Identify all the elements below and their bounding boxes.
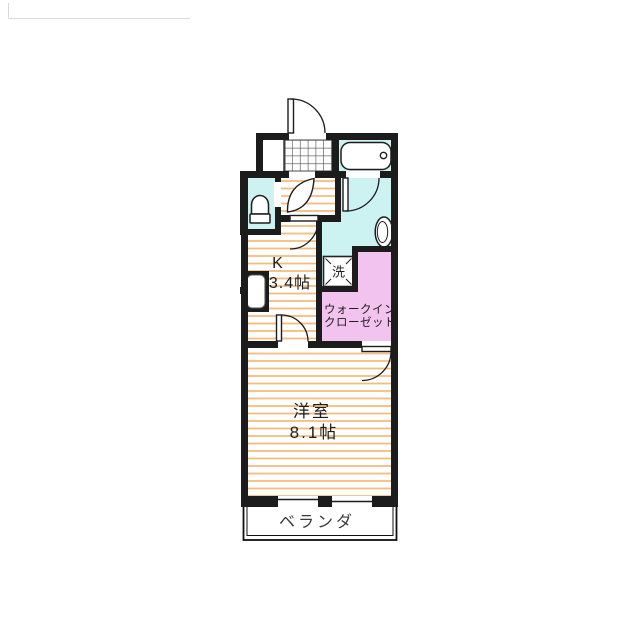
kitchen-area-label: 3.4帖	[269, 274, 311, 292]
closet-door-leaf	[362, 347, 391, 352]
western-room-area-label: 8.1帖	[290, 423, 339, 442]
vanity-sink-icon	[375, 217, 393, 247]
genkan-tile-floor	[285, 140, 332, 171]
floor-plan-page: K 3.4帖 洗 ウォークイン クローゼット 洋室 8.1帖 ベランダ	[0, 0, 639, 640]
western-room-door-leaf	[277, 315, 282, 341]
toilet-icon	[252, 196, 269, 215]
kitchen-label: K	[272, 255, 284, 272]
crop-mark-lines	[8, 3, 190, 19]
kitchen-hall-door-leaf	[290, 216, 318, 222]
washroom-door-leaf	[343, 178, 348, 211]
walk-in-closet-label-line1: ウォークイン	[324, 303, 396, 316]
floor-plan-drawing: K 3.4帖 洗 ウォークイン クローゼット 洋室 8.1帖 ベランダ	[0, 0, 639, 640]
washer-label: 洗	[332, 265, 345, 280]
entrance-door-arc	[291, 99, 325, 133]
walk-in-closet-label-line2: クローゼット	[324, 316, 396, 329]
toilet-door-gap	[274, 182, 281, 207]
entrance-door-leaf	[288, 99, 294, 133]
toilet-tank-icon	[250, 214, 270, 223]
bathtub-drain-icon	[380, 152, 386, 158]
western-room-label: 洋室	[293, 402, 331, 421]
western-room-floor	[248, 348, 391, 496]
balcony-label: ベランダ	[279, 513, 355, 531]
entrance-door	[288, 99, 325, 133]
bathroom-fixtures	[341, 143, 391, 170]
